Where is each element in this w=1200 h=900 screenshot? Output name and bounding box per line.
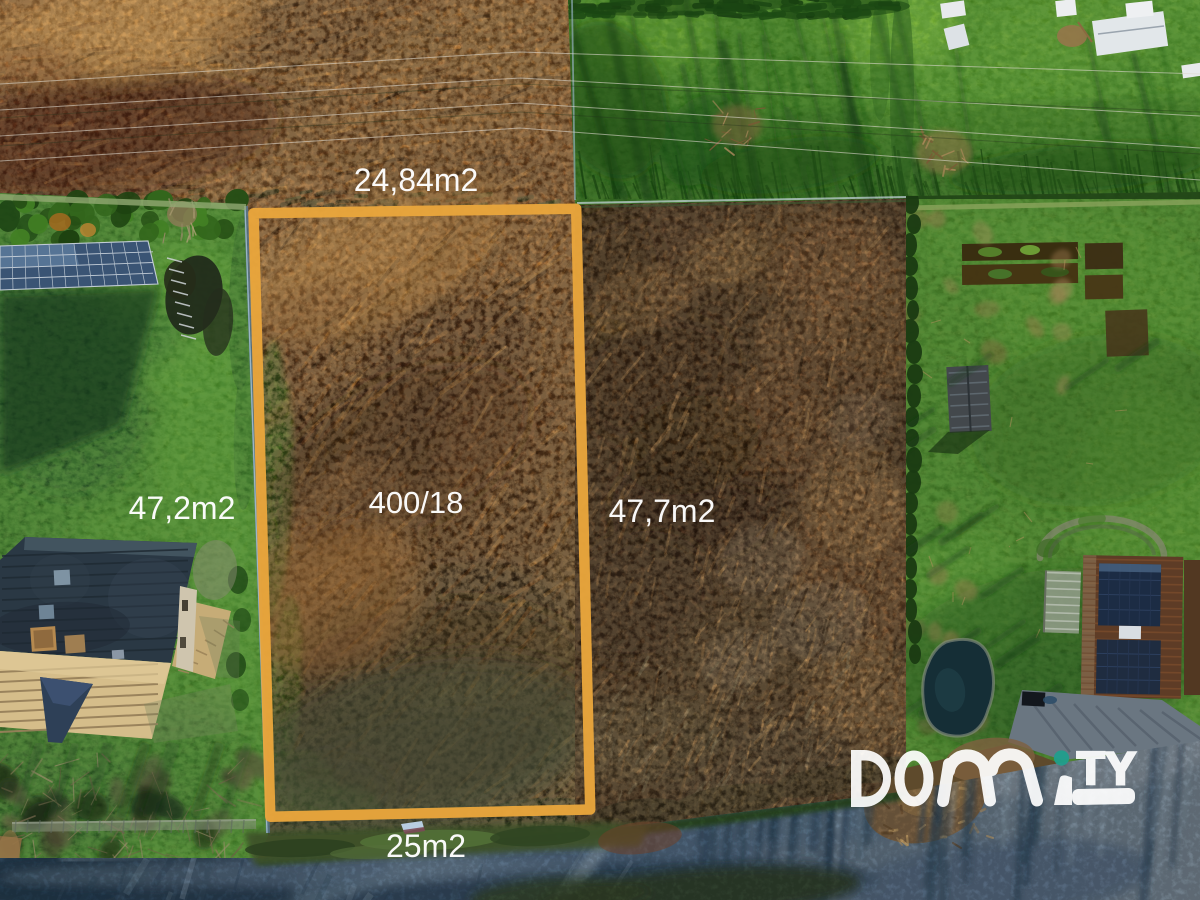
svg-text:47,7m2: 47,7m2 bbox=[609, 493, 716, 529]
svg-text:400/18: 400/18 bbox=[369, 485, 464, 520]
svg-text:TY: TY bbox=[1077, 743, 1137, 794]
svg-text:25m2: 25m2 bbox=[386, 828, 466, 864]
svg-text:47,2m2: 47,2m2 bbox=[129, 490, 236, 526]
svg-text:24,84m2: 24,84m2 bbox=[354, 162, 479, 198]
